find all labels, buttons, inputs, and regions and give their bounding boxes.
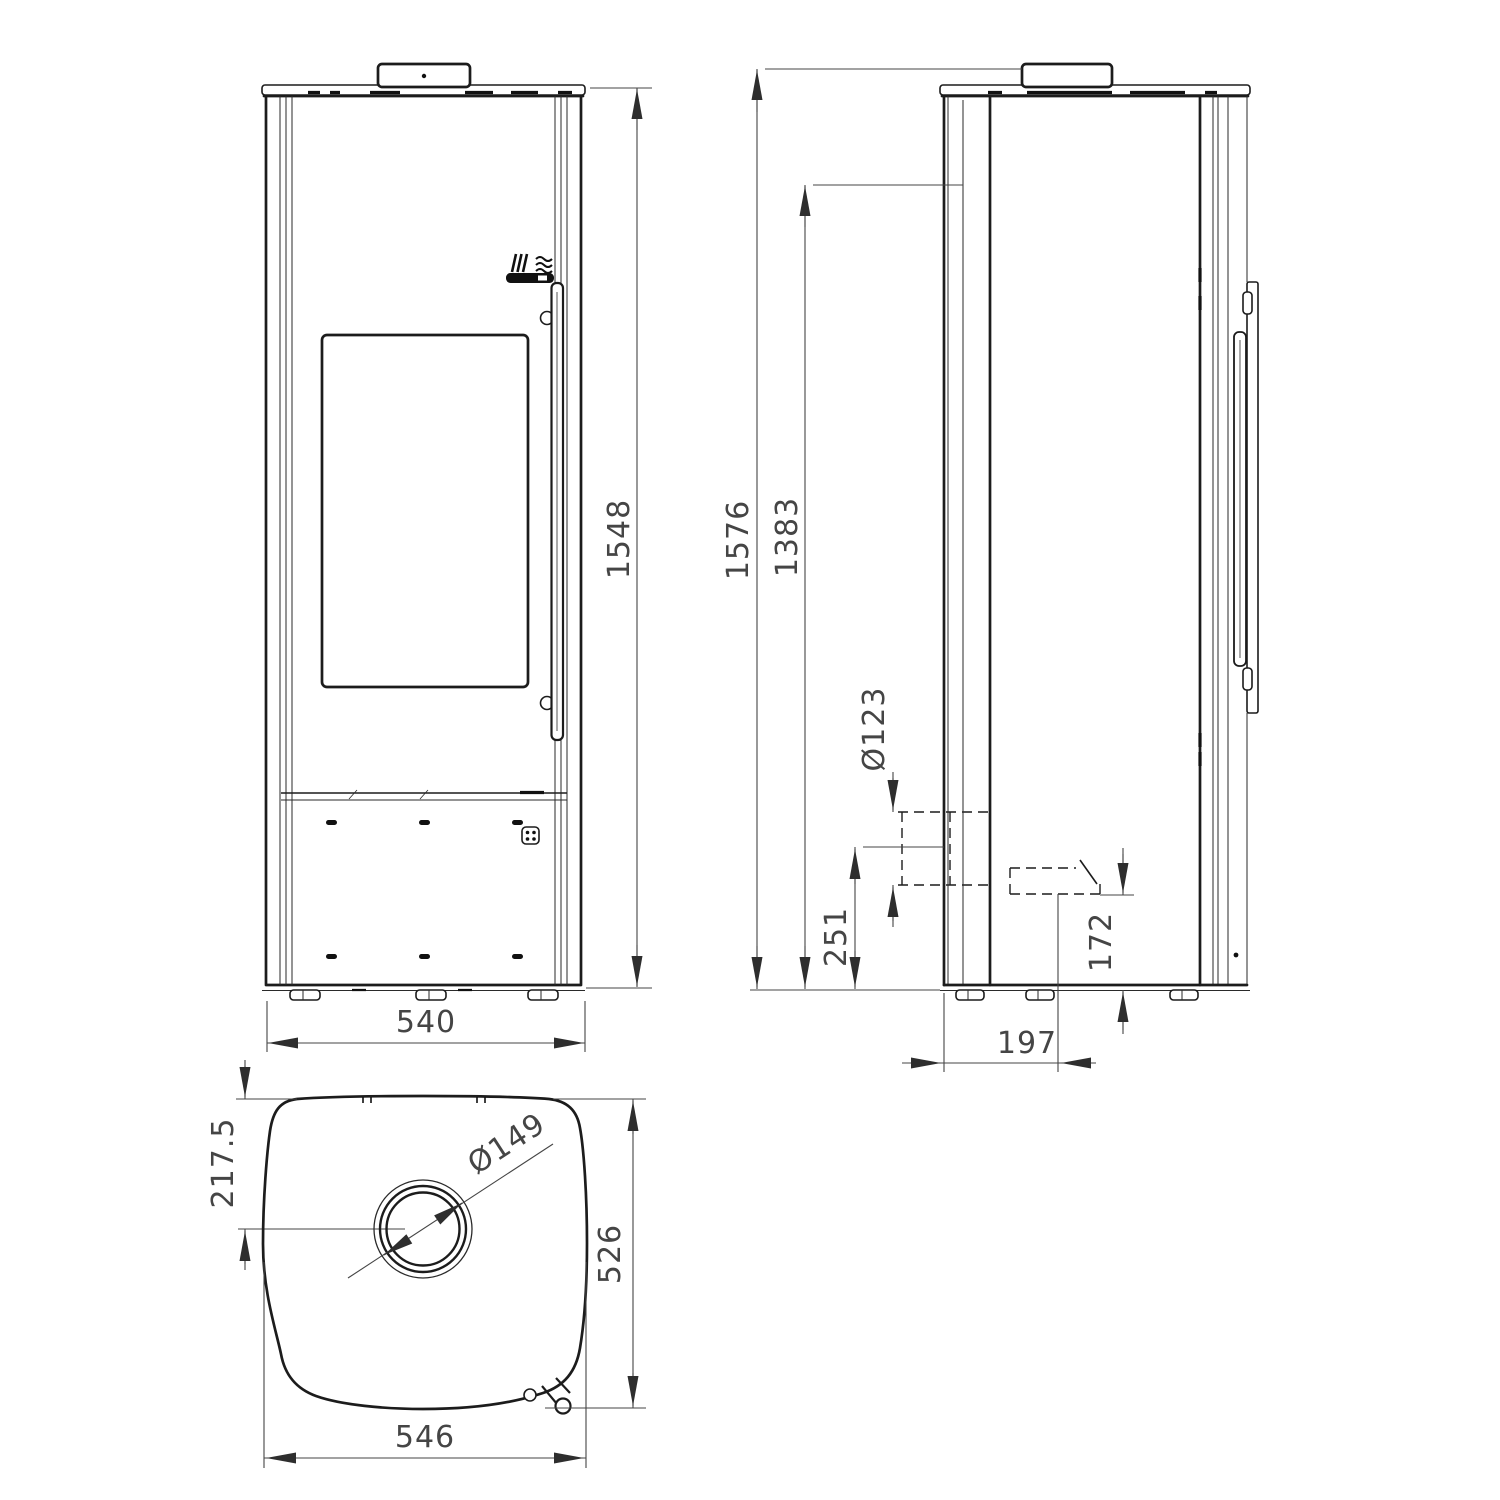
dim-top-width: 546 — [395, 1420, 455, 1455]
top-edge-ticks — [363, 1097, 485, 1103]
collar-dot — [422, 74, 426, 78]
dimension-top-flue-offset: 217.5 — [206, 1060, 297, 1270]
dim-top-flue-offset: 217.5 — [206, 1118, 241, 1209]
dim-front-height: 1548 — [602, 499, 637, 579]
feet-side — [956, 990, 1198, 1000]
air-control — [506, 254, 554, 283]
side-thin-lines — [948, 96, 1247, 985]
glass-window — [322, 335, 528, 687]
latch-notch — [524, 1389, 536, 1401]
logo-badge — [522, 827, 539, 844]
dimension-front-height: 1548 — [586, 88, 652, 988]
dimension-front-width: 540 — [267, 1001, 585, 1052]
side-view: 1576 1383 Ø123 251 172 — [721, 64, 1258, 1072]
lower-panel-slots — [326, 820, 523, 959]
air-slider-knob — [538, 276, 547, 281]
dim-side-air-inlet-height: 172 — [1084, 912, 1119, 972]
dim-side-flue-center-height: 251 — [819, 907, 854, 967]
dimension-side-rear-height: 1383 — [770, 185, 963, 989]
air-control-wave-icon — [536, 257, 552, 273]
dim-side-flue-diameter: Ø123 — [857, 687, 892, 772]
feet-front — [290, 990, 558, 1000]
door-frame-profile — [1247, 282, 1258, 713]
dimension-top-depth: 526 — [545, 1099, 646, 1408]
top-view: 217.5 Ø149 526 546 — [206, 1060, 646, 1468]
dimension-air-inlet-setback: 197 — [902, 894, 1096, 1072]
screw-dot — [1234, 953, 1239, 958]
dimension-flue-center-height: 251 — [819, 847, 944, 989]
dim-side-rear-height: 1383 — [770, 497, 805, 577]
dimension-side-overall-height: 1576 — [721, 69, 1022, 990]
seam-ticks — [349, 790, 428, 799]
air-inlet-flap — [1080, 860, 1097, 884]
dim-side-air-inlet-setback: 197 — [997, 1026, 1057, 1061]
flue-collar-side — [1022, 64, 1112, 87]
air-control-bars-icon — [512, 254, 527, 272]
front-view: 1548 540 — [262, 64, 652, 1052]
dim-top-flue-diameter: Ø149 — [462, 1106, 552, 1182]
dimension-top-width: 546 — [264, 1262, 586, 1468]
dim-top-depth: 526 — [593, 1224, 628, 1284]
hinge-tab-top — [1243, 292, 1252, 314]
side-body-lines — [944, 96, 1200, 985]
dim-front-width: 540 — [396, 1005, 456, 1040]
dimension-flue-diameter: Ø123 — [857, 687, 893, 927]
hidden-air-inlet — [1010, 868, 1100, 894]
dim-side-overall-height: 1576 — [721, 500, 756, 580]
technical-drawing: 1548 540 — [0, 0, 1500, 1500]
hinge-tab-bottom — [1243, 668, 1252, 690]
